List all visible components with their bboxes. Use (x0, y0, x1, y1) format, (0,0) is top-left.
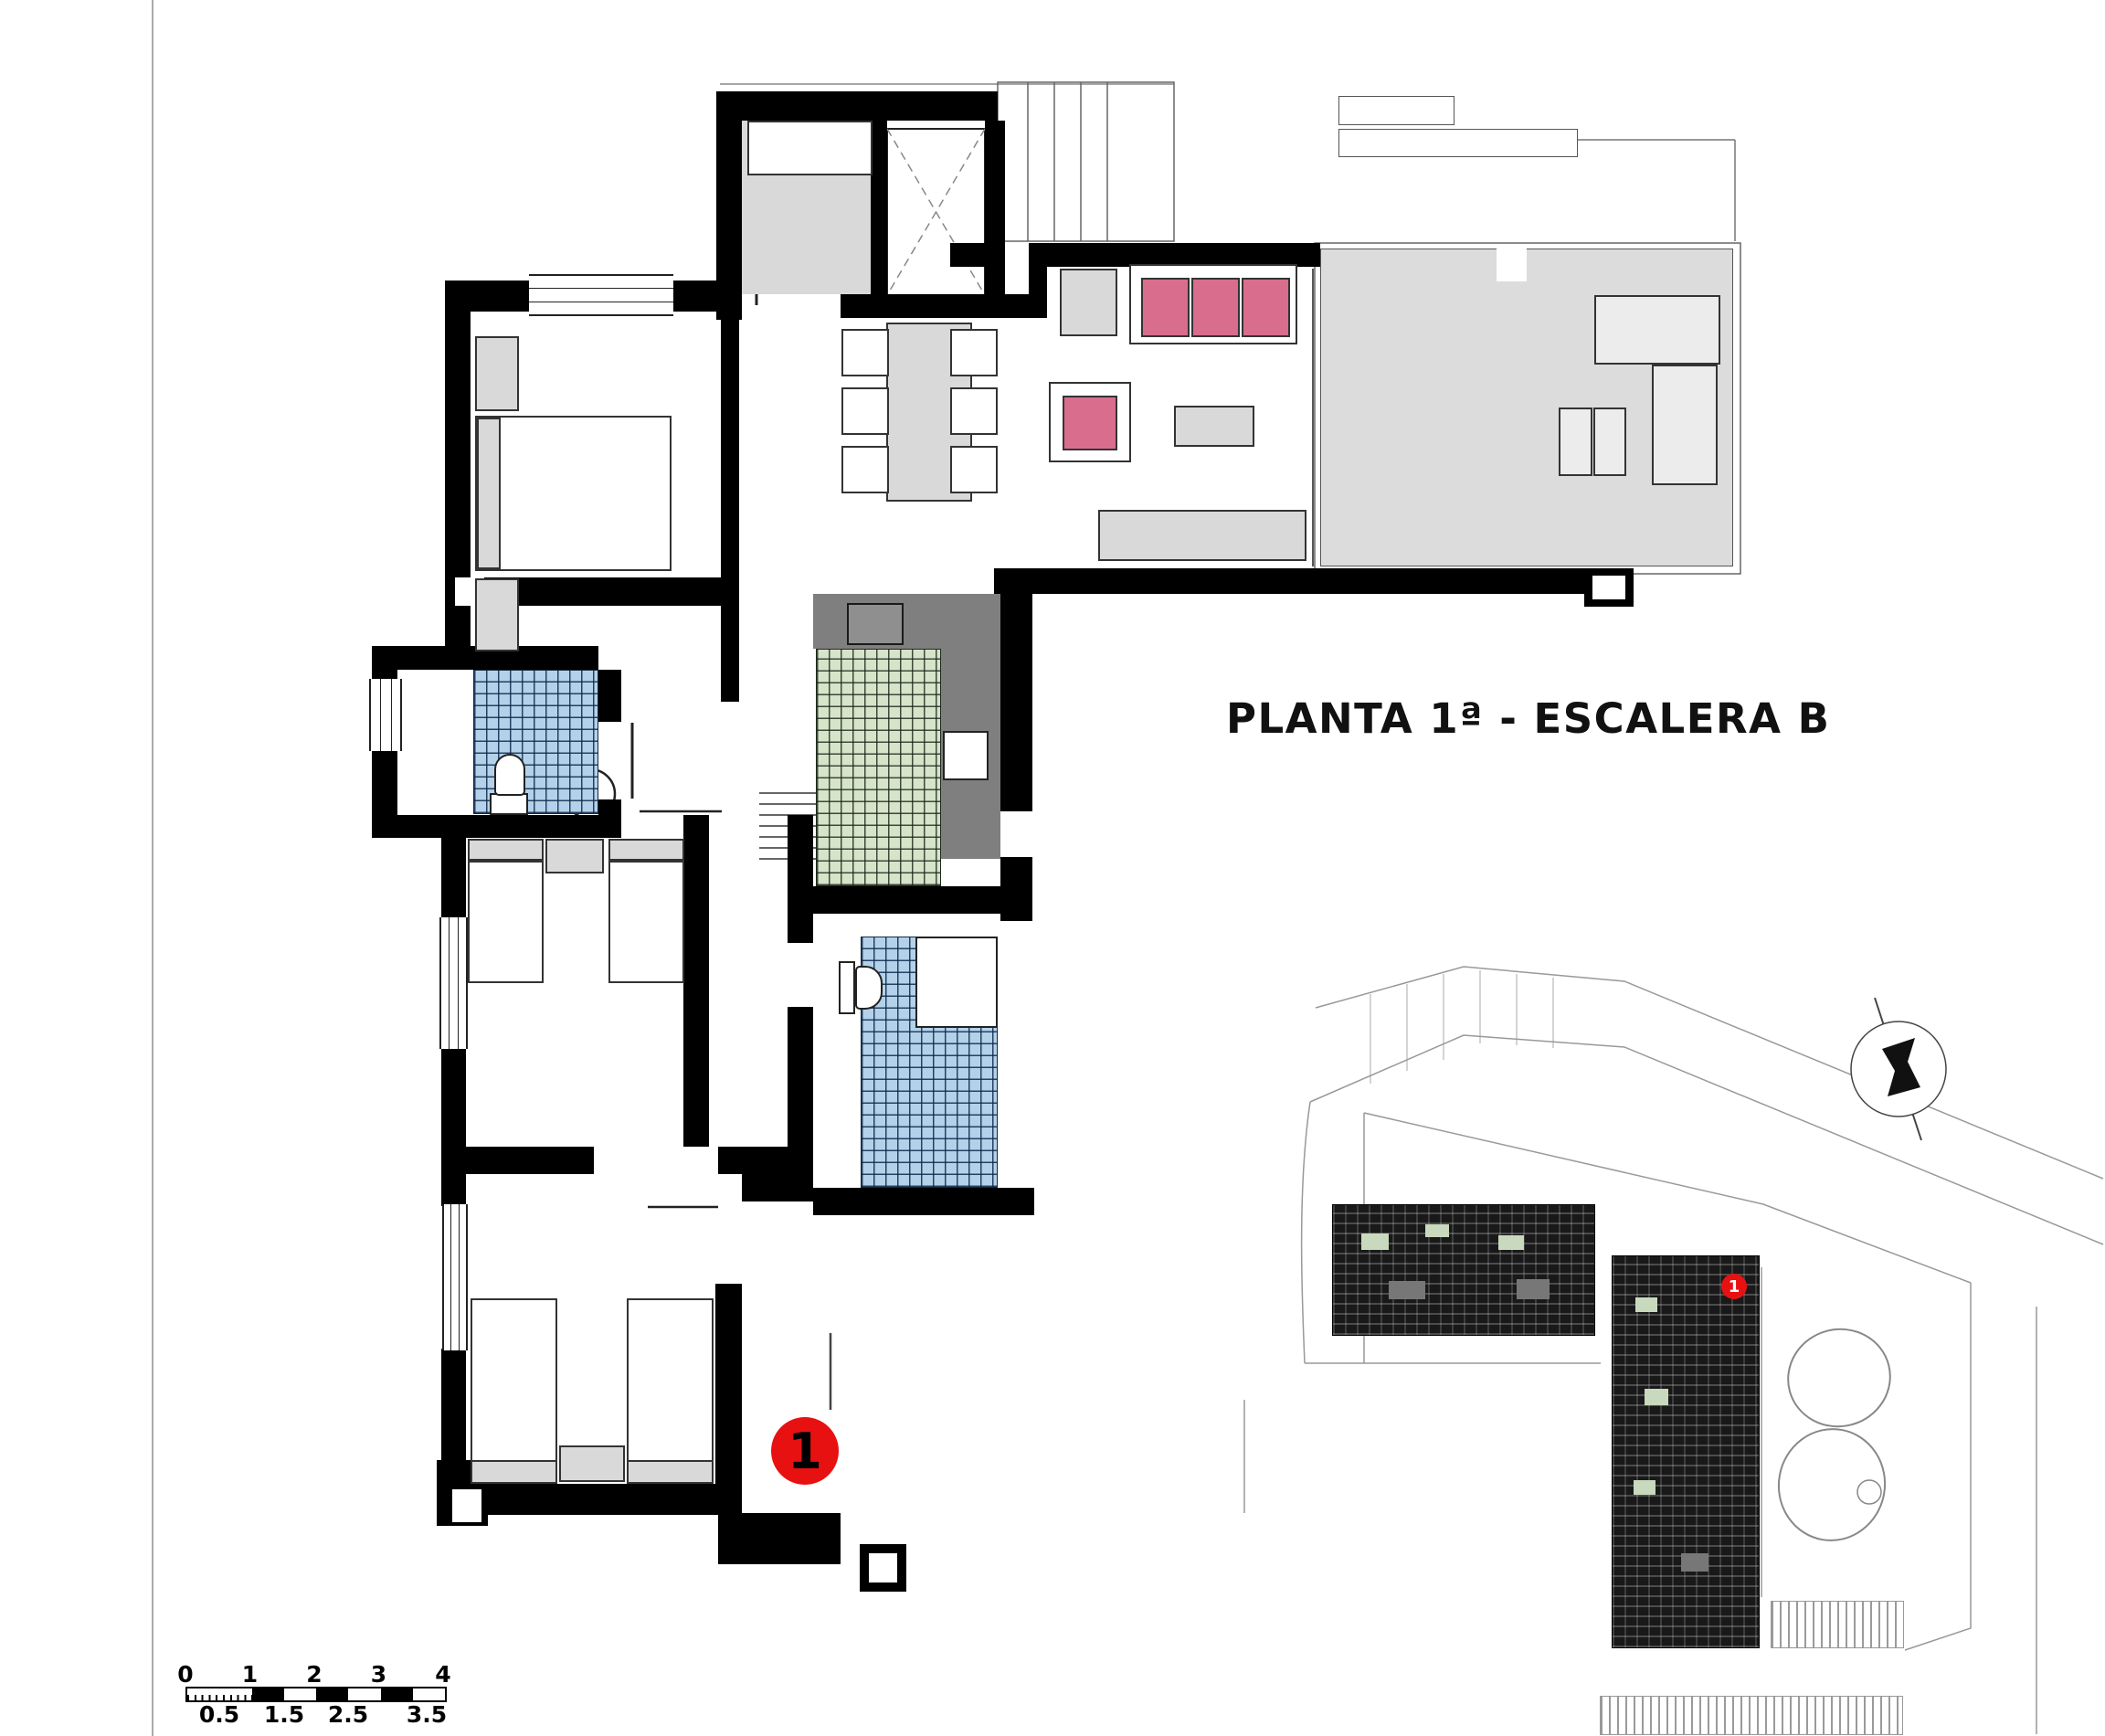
toilet1-tank (490, 793, 528, 815)
scale-segment (381, 1688, 413, 1700)
bed2-nightstand (545, 839, 604, 873)
living-side-table (1060, 269, 1117, 336)
site-detail (1681, 1553, 1708, 1572)
wall-segment (813, 886, 1032, 914)
scale-label-top: 4 (435, 1661, 450, 1688)
site-building-b (1612, 1255, 1760, 1648)
wall-segment (441, 1349, 466, 1462)
site-detail (1425, 1224, 1449, 1237)
path (1905, 1283, 1971, 1650)
wall-segment (715, 1284, 742, 1515)
window-bathroom1-left (369, 679, 402, 751)
terrace-sofa-horizontal (1594, 295, 1720, 365)
scale-label-bottom: 1.5 (264, 1701, 304, 1728)
wall-segment (673, 281, 742, 312)
bath2-shower-tray (915, 937, 998, 1028)
window-bedroom1-top (529, 274, 673, 316)
site-detail (1645, 1389, 1668, 1405)
hall-cabinet (747, 121, 873, 175)
wall-segment (598, 670, 621, 722)
toilet2-tank (839, 961, 855, 1014)
scale-segment (348, 1688, 380, 1700)
bed2-single-bed (608, 861, 684, 983)
site-detail (1498, 1235, 1524, 1250)
bed2-pillow (608, 839, 684, 861)
wall-segment (871, 121, 887, 296)
wall-segment (742, 1174, 813, 1201)
dining-chair (950, 446, 998, 493)
sofa-cushion (1141, 278, 1190, 337)
pillar-bottom-right (869, 1553, 897, 1583)
sofa-cushion (1242, 278, 1290, 337)
pool-lower (1770, 1421, 1893, 1549)
path (1302, 1102, 1310, 1363)
wall-segment (445, 606, 471, 646)
armchair-cushion (1063, 396, 1117, 450)
site-detail (1634, 1480, 1655, 1495)
scale-bar-strip (185, 1687, 447, 1702)
dining-chair (950, 329, 998, 376)
scale-label-bottom: 2.5 (328, 1701, 368, 1728)
wall-segment (1000, 594, 1032, 811)
site-detail (1389, 1281, 1425, 1299)
scale-label-top: 0 (177, 1661, 193, 1688)
kitchen-sink (943, 731, 989, 780)
bed3-pillow (471, 1460, 557, 1484)
balcony-rail-2 (1338, 129, 1578, 157)
kitchen-appliance (847, 603, 904, 645)
bed1-nightstand-top (475, 336, 519, 411)
balcony-rail-1 (1338, 96, 1454, 125)
wall-segment (721, 318, 739, 606)
coffee-table (1174, 406, 1254, 447)
wall-segment (445, 577, 455, 606)
site-parking-strip-1 (1771, 1601, 1904, 1648)
scale-label-bottom: 0.5 (199, 1701, 239, 1728)
path (1316, 967, 2103, 1179)
dining-chair (841, 446, 889, 493)
scale-segment (413, 1688, 445, 1700)
terrace-pillar-notch (1497, 249, 1527, 281)
wall-segment (466, 1147, 594, 1174)
floorplan-sheet: PLANTA 1ª - ESCALERA B 012340.51.52.53.5… (0, 0, 2105, 1736)
terrace-table-b (1593, 408, 1626, 476)
scale-segment (252, 1688, 284, 1700)
scale-segment (316, 1688, 348, 1700)
dining-chair (841, 387, 889, 435)
site-detail (1635, 1297, 1657, 1312)
bed3-single-bed (471, 1298, 557, 1462)
bed2-single-bed (468, 861, 544, 983)
bed1-nightstand-bottom (475, 578, 519, 651)
wall-segment (718, 1513, 841, 1564)
site-parking-strip-2 (1600, 1696, 1903, 1735)
wall-segment (372, 815, 441, 838)
wall-segment (484, 577, 737, 606)
site-detail (1361, 1233, 1389, 1250)
wall-segment (994, 568, 1586, 594)
wall-segment (372, 749, 397, 815)
window-bedroom2-left (439, 917, 468, 1049)
wall-segment (718, 1147, 813, 1174)
wall-segment (985, 121, 1005, 296)
wall-segment (813, 1188, 1034, 1215)
drawing-title: PLANTA 1ª - ESCALERA B (1226, 694, 1830, 743)
wall-segment (441, 815, 621, 838)
terrace-sofa-vertical (1652, 365, 1718, 485)
bed1-pillow (477, 418, 501, 569)
scale-label-top: 1 (242, 1661, 258, 1688)
wall-segment (441, 838, 466, 919)
bed3-nightstand (559, 1445, 625, 1482)
toilet1-bowl (494, 754, 525, 796)
bed3-single-bed (627, 1298, 714, 1462)
wall-segment (441, 1047, 466, 1206)
wall-segment (1029, 267, 1047, 294)
pool-upper (1777, 1318, 1901, 1437)
site-building-a (1332, 1204, 1595, 1336)
scale-label-top: 3 (371, 1661, 386, 1688)
wall-segment (683, 838, 709, 1147)
living-sideboard (1098, 510, 1306, 561)
wall-segment (841, 294, 1047, 318)
niche-bed3-corner (452, 1489, 481, 1522)
window-bedroom3-left (442, 1204, 468, 1350)
wall-segment (950, 243, 998, 267)
sofa-cushion (1191, 278, 1240, 337)
terrace-table-a (1559, 408, 1592, 476)
dining-chair (841, 329, 889, 376)
dining-chair (950, 387, 998, 435)
wall-segment (683, 815, 709, 838)
unit-marker-siteplan: 1 (1721, 1274, 1747, 1299)
kitchen-counter-band (813, 594, 1000, 649)
wall-segment (716, 91, 998, 121)
scale-segment (187, 1688, 252, 1700)
wall-segment (445, 281, 471, 577)
scale-label-bottom: 3.5 (407, 1701, 447, 1728)
wall-segment (488, 1484, 742, 1515)
wall-segment (598, 799, 621, 815)
bed2-pillow (468, 839, 544, 861)
scale-label-top: 2 (306, 1661, 322, 1688)
scale-segment (284, 1688, 316, 1700)
bed1-double-bed (475, 416, 672, 571)
bed3-pillow (627, 1460, 714, 1484)
toilet2-bowl (855, 966, 883, 1010)
wall-segment (788, 815, 813, 943)
path (998, 82, 1174, 241)
wall-segment (721, 606, 739, 702)
unit-marker-floorplan: 1 (771, 1417, 839, 1485)
site-detail (1517, 1279, 1550, 1299)
pillar-core-living (1592, 576, 1625, 599)
kitchen-tiles (816, 649, 941, 886)
